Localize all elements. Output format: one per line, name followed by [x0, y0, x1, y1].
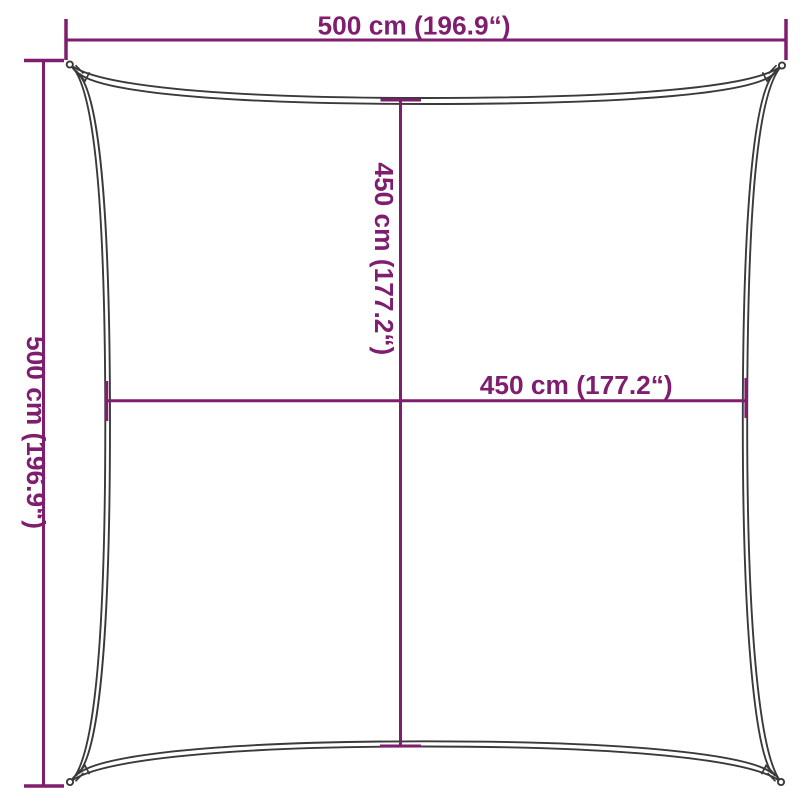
svg-text:450 cm (177.2“): 450 cm (177.2“): [480, 370, 673, 400]
svg-text:450 cm (177.2“): 450 cm (177.2“): [369, 162, 399, 355]
svg-text:500 cm (196.9“): 500 cm (196.9“): [21, 336, 51, 529]
svg-text:500 cm (196.9“): 500 cm (196.9“): [318, 11, 511, 41]
